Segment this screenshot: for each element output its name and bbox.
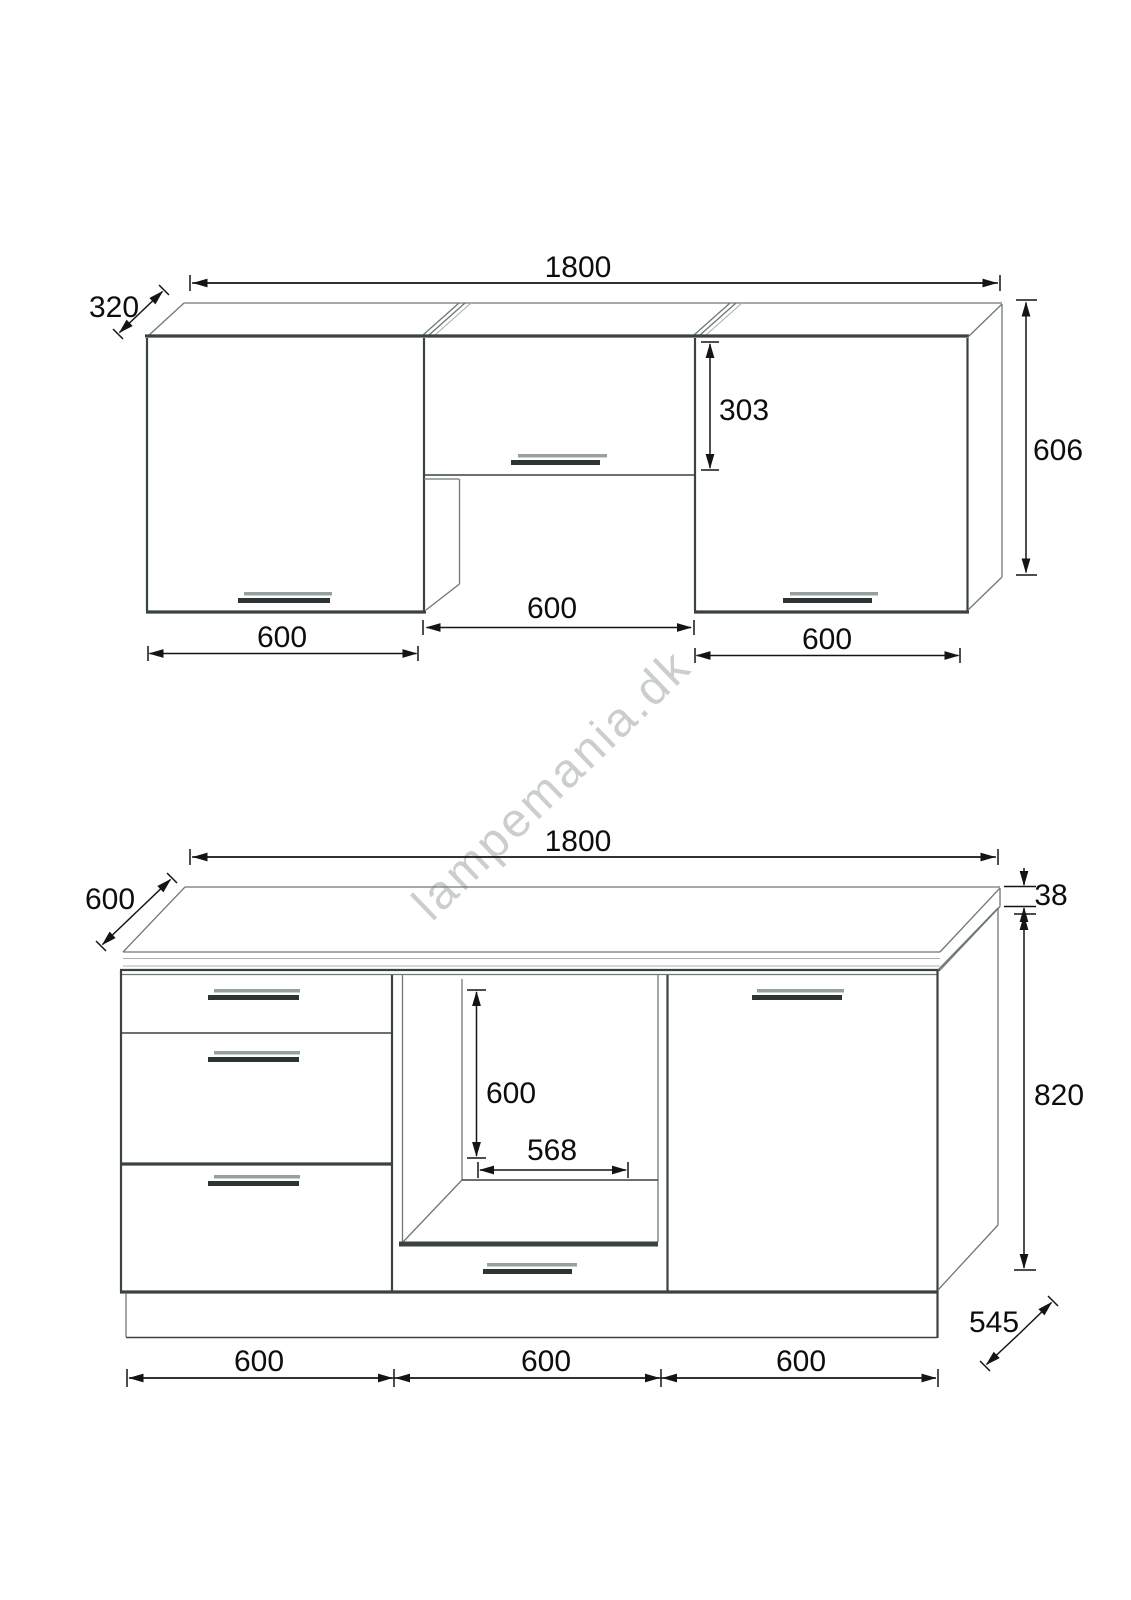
dim-upper-depth: 320 (89, 285, 169, 339)
dim-label-lower-worktop-thickness: 38 (1034, 879, 1067, 912)
dim-label-upper-right-width: 600 (802, 623, 852, 656)
wall-cabinet-left (146, 338, 426, 612)
lower-base-unit-drawing: 1800 600 38 820 (85, 825, 1084, 1387)
base-door-right (668, 975, 845, 1292)
dim-label-lower-height: 820 (1034, 1079, 1084, 1112)
base-appliance-niche (399, 975, 658, 1274)
niche-bottom-drawer-handle (483, 1263, 577, 1274)
dim-label-upper-depth: 320 (89, 291, 139, 324)
dim-upper-right-width: 600 (695, 623, 960, 663)
dim-upper-total-width: 1800 (190, 251, 1000, 291)
base-drawer-stack (121, 975, 392, 1292)
dim-label-upper-total-width: 1800 (545, 251, 612, 284)
dim-label-lower-worktop-width: 1800 (545, 825, 612, 858)
wall-cabinet-left-handle (238, 592, 332, 603)
dim-label-lower-right-section: 600 (776, 1345, 826, 1378)
base-door-handle (752, 989, 844, 1000)
dim-label-upper-flip-door-height: 303 (719, 394, 769, 427)
upper-wall-unit-drawing: 1800 320 303 606 (89, 251, 1083, 663)
dim-label-lower-middle-section: 600 (521, 1345, 571, 1378)
dim-lower-height: 820 (1014, 914, 1084, 1270)
drawer-1-handle (208, 989, 300, 1000)
dim-label-lower-left-section: 600 (234, 1345, 284, 1378)
wall-cabinet-right-handle (783, 592, 878, 603)
wall-cabinet-middle (424, 454, 695, 610)
dim-label-lower-worktop-depth: 600 (85, 883, 135, 916)
drawer-2-handle (208, 1051, 300, 1062)
dim-label-lower-base-depth: 545 (969, 1306, 1019, 1339)
kitchen-cabinet-drawing: lampemania.dk (0, 0, 1131, 1600)
dim-label-lower-niche-height: 600 (486, 1077, 536, 1110)
dim-upper-height: 606 (1016, 300, 1083, 575)
wall-cabinet-middle-handle (511, 454, 607, 465)
drawer-3-handle (208, 1175, 300, 1186)
dim-label-lower-niche-width: 568 (527, 1134, 577, 1167)
dim-lower-worktop-depth: 600 (85, 873, 177, 951)
dim-lower-worktop-width: 1800 (190, 825, 998, 865)
dim-lower-worktop-thickness: 38 (1004, 868, 1068, 925)
dim-lower-section-widths: 600 600 600 (127, 1345, 938, 1387)
technical-drawing-page: lampemania.dk (0, 0, 1131, 1600)
dim-lower-base-depth: 545 (969, 1296, 1058, 1371)
upper-top-face (145, 303, 1002, 337)
dim-lower-niche-height: 600 (467, 990, 536, 1158)
dim-label-upper-height: 606 (1033, 434, 1083, 467)
dim-label-upper-left-width: 600 (257, 621, 307, 654)
dim-lower-niche-width: 568 (478, 1134, 628, 1178)
dim-upper-left-width: 600 (148, 621, 418, 661)
wall-cabinet-right (694, 304, 1002, 612)
dim-upper-middle-gap: 600 (423, 592, 694, 635)
dim-label-upper-middle-gap: 600 (527, 592, 577, 625)
worktop (120, 887, 1000, 970)
dim-upper-flip-door-height: 303 (701, 342, 769, 470)
